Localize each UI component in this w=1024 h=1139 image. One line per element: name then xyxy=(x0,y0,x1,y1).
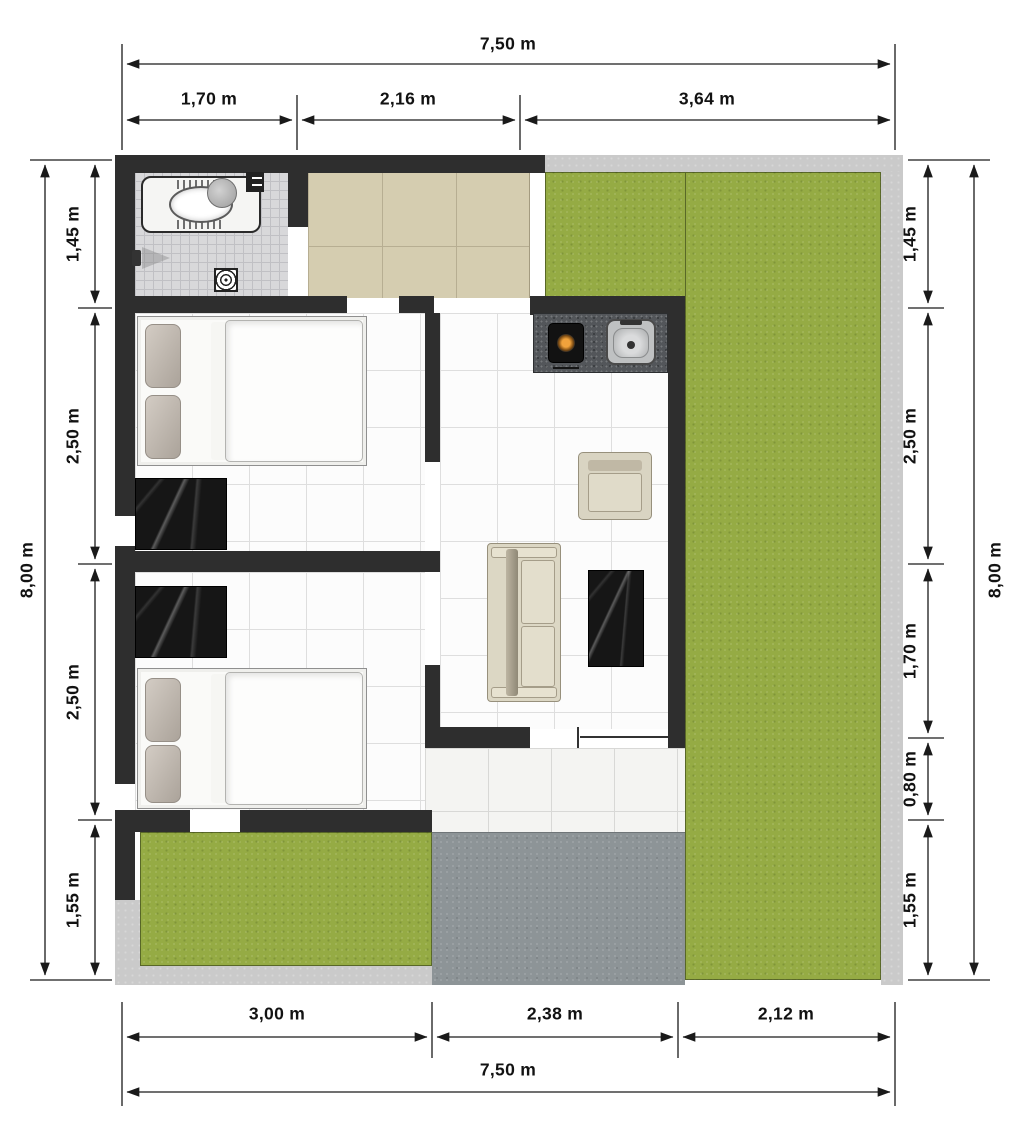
dim-left-seg1: 1,45 m xyxy=(63,206,84,262)
dim-left-seg2: 2,50 m xyxy=(63,408,84,464)
dim-right-seg4: 0,80 m xyxy=(900,751,921,807)
dim-right-total: 8,00 m xyxy=(985,542,1006,598)
dim-right-seg2: 2,50 m xyxy=(900,408,921,464)
dim-bottom-seg2: 2,38 m xyxy=(527,1004,583,1025)
dim-left-seg4: 1,55 m xyxy=(63,872,84,928)
floor-plan-canvas: 7,50 m 1,70 m 2,16 m 3,64 m 8,00 m 1,45 … xyxy=(0,0,1024,1139)
dim-right-seg5: 1,55 m xyxy=(900,872,921,928)
dim-left-total: 8,00 m xyxy=(17,542,38,598)
dimension-lines xyxy=(0,0,1024,1139)
dim-right-seg3: 1,70 m xyxy=(900,623,921,679)
dim-top-seg3: 3,64 m xyxy=(679,89,735,110)
dim-bottom-total: 7,50 m xyxy=(480,1060,536,1081)
dim-left-seg3: 2,50 m xyxy=(63,664,84,720)
dim-top-total: 7,50 m xyxy=(480,34,536,55)
dim-bottom-seg1: 3,00 m xyxy=(249,1004,305,1025)
dim-right-seg1: 1,45 m xyxy=(900,206,921,262)
dim-top-seg1: 1,70 m xyxy=(181,89,237,110)
dim-bottom-seg3: 2,12 m xyxy=(758,1004,814,1025)
dim-top-seg2: 2,16 m xyxy=(380,89,436,110)
